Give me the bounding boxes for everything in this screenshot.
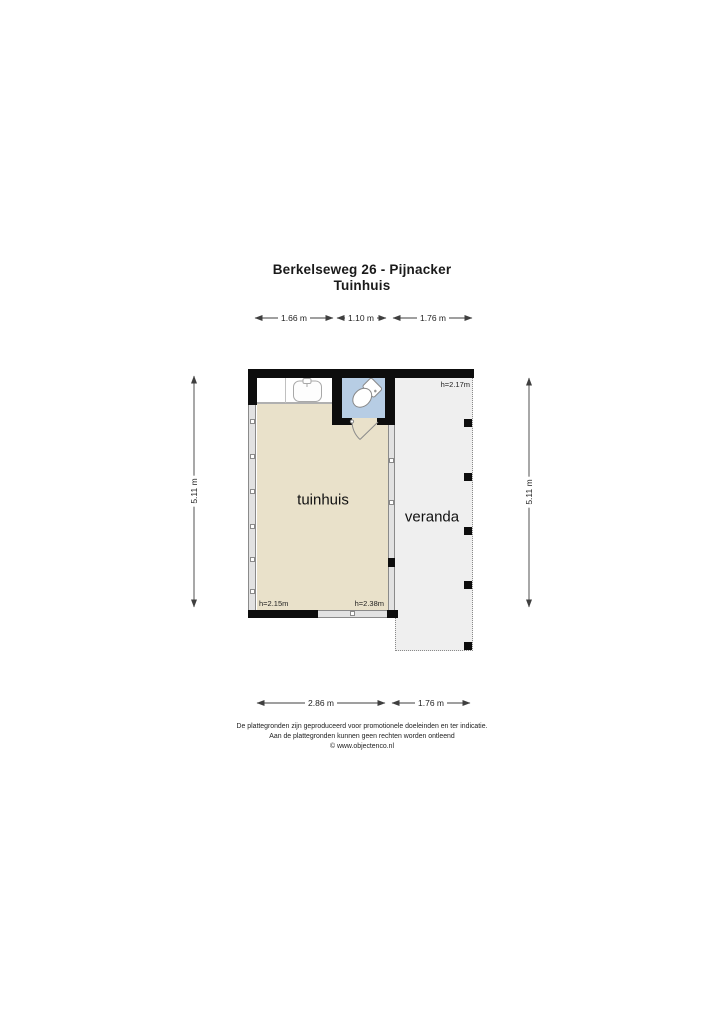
- height-label-tuinhuis-right: h=2.38m: [352, 599, 384, 608]
- counter-divider: [285, 378, 286, 403]
- disclaimer: De plattegronden zijn geproduceerd voor …: [0, 722, 724, 752]
- window-mullion: [250, 524, 255, 529]
- wall-toilet-left: [332, 369, 342, 425]
- dim-top-1: 1.66 m: [278, 313, 310, 323]
- dim-bottom-2: 1.76 m: [415, 698, 447, 708]
- window-mullion: [250, 589, 255, 594]
- room-label-tuinhuis: tuinhuis: [297, 492, 349, 509]
- dim-bottom-1: 2.86 m: [305, 698, 337, 708]
- sliding-door-handle: [388, 558, 395, 567]
- veranda-post: [464, 419, 472, 427]
- window-mullion: [350, 611, 355, 616]
- counter: [257, 378, 332, 404]
- veranda-post: [464, 581, 472, 589]
- wall-toilet-bottom-right: [377, 418, 395, 425]
- window-mullion: [250, 489, 255, 494]
- disclaimer-line1: De plattegronden zijn geproduceerd voor …: [0, 722, 724, 732]
- dim-top-2: 1.10 m: [345, 313, 377, 323]
- wall-top: [248, 369, 474, 378]
- dim-left: 5.11 m: [189, 475, 199, 506]
- height-label-veranda: h=2.17m: [440, 380, 470, 389]
- disclaimer-copyright: © www.objectenco.nl: [0, 742, 724, 752]
- wall-toilet-bottom-left: [332, 418, 352, 425]
- veranda-left-boundary: [395, 618, 396, 651]
- wall-bottom-right-corner: [387, 610, 398, 618]
- veranda-post: [464, 473, 472, 481]
- window-wall-left: [248, 405, 256, 610]
- veranda-post: [464, 527, 472, 535]
- disclaimer-line2: Aan de plattegronden kunnen geen rechten…: [0, 732, 724, 742]
- room-toilet-floor: [342, 378, 385, 418]
- window-wall-right: [388, 425, 395, 610]
- wall-bottom-left: [248, 610, 318, 618]
- title-address: Berkelseweg 26 - Pijnacker: [0, 262, 724, 278]
- veranda-post: [464, 642, 472, 650]
- dim-right: 5.11 m: [524, 476, 534, 507]
- floorplan-page: Berkelseweg 26 - Pijnacker Tuinhuis: [0, 0, 724, 1024]
- dim-top-3: 1.76 m: [417, 313, 449, 323]
- window-mullion: [389, 458, 394, 463]
- height-label-tuinhuis-left: h=2.15m: [259, 599, 288, 608]
- title-subtitle: Tuinhuis: [0, 278, 724, 294]
- page-title: Berkelseweg 26 - Pijnacker Tuinhuis: [0, 262, 724, 294]
- room-label-veranda: veranda: [405, 509, 459, 526]
- window-mullion: [250, 557, 255, 562]
- window-mullion: [250, 454, 255, 459]
- wall-toilet-right: [385, 369, 395, 425]
- wall-left-upper: [248, 369, 257, 405]
- window-mullion: [250, 419, 255, 424]
- window-mullion: [389, 500, 394, 505]
